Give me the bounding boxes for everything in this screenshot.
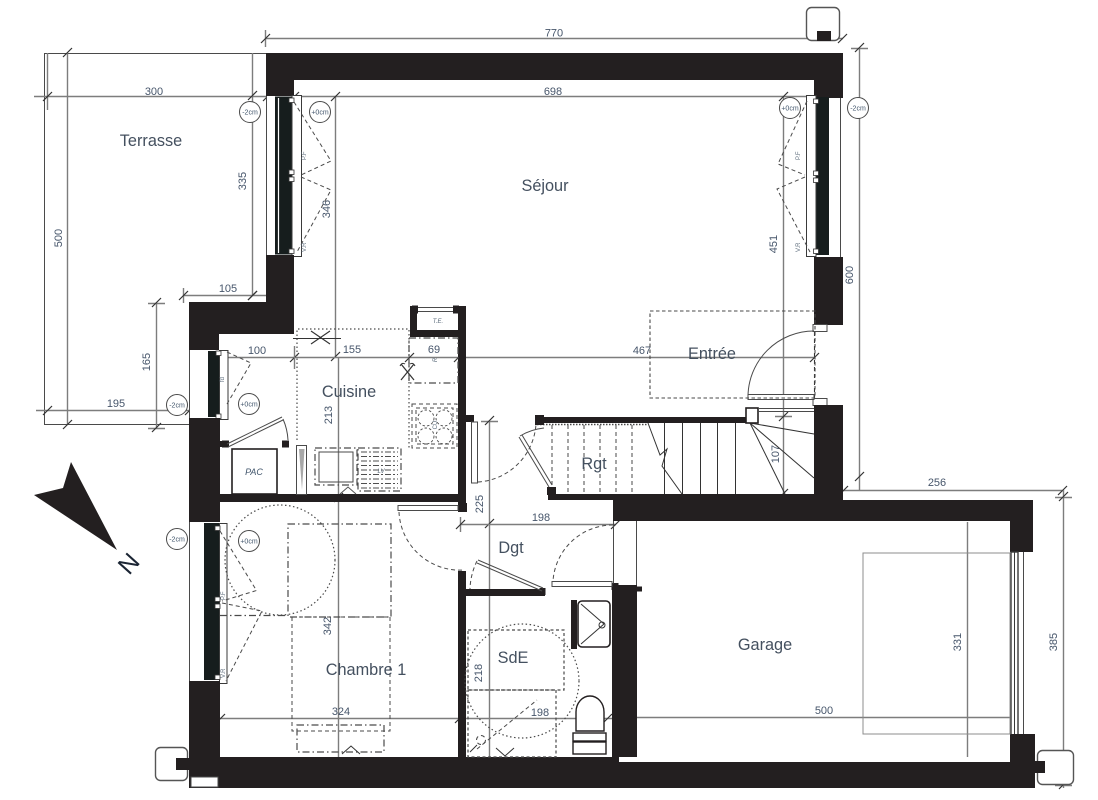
svg-text:218: 218 xyxy=(473,664,485,682)
svg-text:331: 331 xyxy=(952,633,964,651)
svg-text:198: 198 xyxy=(532,512,550,524)
svg-text:Dgt: Dgt xyxy=(498,539,524,557)
svg-text:Rgt: Rgt xyxy=(581,455,607,473)
svg-text:346: 346 xyxy=(321,200,333,218)
svg-text:P.F: P.F xyxy=(302,151,308,160)
svg-text:Garage: Garage xyxy=(738,636,792,654)
svg-text:T.E.: T.E. xyxy=(433,319,443,325)
svg-text:324: 324 xyxy=(332,706,350,718)
svg-text:LV: LV xyxy=(377,469,385,475)
svg-text:195: 195 xyxy=(107,398,125,410)
svg-text:-2cm: -2cm xyxy=(169,537,185,544)
svg-text:165: 165 xyxy=(141,353,153,371)
svg-text:213: 213 xyxy=(323,406,335,424)
svg-text:Terrasse: Terrasse xyxy=(120,132,182,150)
svg-text:+0cm: +0cm xyxy=(311,110,328,117)
svg-text:342: 342 xyxy=(322,617,334,635)
svg-text:-2cm: -2cm xyxy=(242,110,258,117)
svg-text:V.R: V.R xyxy=(221,668,227,678)
svg-text:69: 69 xyxy=(428,344,440,356)
svg-text:P.F: P.F xyxy=(221,591,227,600)
svg-text:500: 500 xyxy=(815,705,833,717)
svg-text:Entrée: Entrée xyxy=(688,345,736,363)
svg-text:198: 198 xyxy=(531,707,549,719)
svg-text:Chambre 1: Chambre 1 xyxy=(326,661,407,679)
svg-text:300: 300 xyxy=(145,86,163,98)
svg-text:+0cm: +0cm xyxy=(240,539,257,546)
svg-text:+0cm: +0cm xyxy=(240,402,257,409)
svg-text:225: 225 xyxy=(474,495,486,513)
svg-text:Cuisine: Cuisine xyxy=(322,383,376,401)
svg-text:600: 600 xyxy=(844,266,856,284)
svg-text:PAC: PAC xyxy=(245,467,263,477)
svg-text:100: 100 xyxy=(248,345,266,357)
svg-text:335: 335 xyxy=(237,172,249,190)
svg-text:R: R xyxy=(433,357,439,362)
svg-text:105: 105 xyxy=(219,283,237,295)
svg-text:V.R: V.R xyxy=(302,242,308,252)
svg-text:V.R: V.R xyxy=(796,242,802,252)
svg-text:770: 770 xyxy=(545,28,563,40)
svg-text:107: 107 xyxy=(770,445,782,463)
svg-text:451: 451 xyxy=(768,235,780,253)
svg-text:500: 500 xyxy=(53,229,65,247)
svg-text:fd: fd xyxy=(220,377,226,382)
svg-text:CU: CU xyxy=(433,421,439,430)
svg-text:P.F: P.F xyxy=(796,151,802,160)
svg-text:+0cm: +0cm xyxy=(781,106,798,113)
svg-text:-2cm: -2cm xyxy=(169,403,185,410)
svg-text:467: 467 xyxy=(633,345,651,357)
svg-text:SdE: SdE xyxy=(498,649,529,667)
svg-text:-2cm: -2cm xyxy=(850,106,866,113)
svg-text:155: 155 xyxy=(343,344,361,356)
svg-text:385: 385 xyxy=(1048,633,1060,651)
svg-text:Séjour: Séjour xyxy=(521,177,569,195)
svg-text:256: 256 xyxy=(928,477,946,489)
svg-text:698: 698 xyxy=(544,86,562,98)
